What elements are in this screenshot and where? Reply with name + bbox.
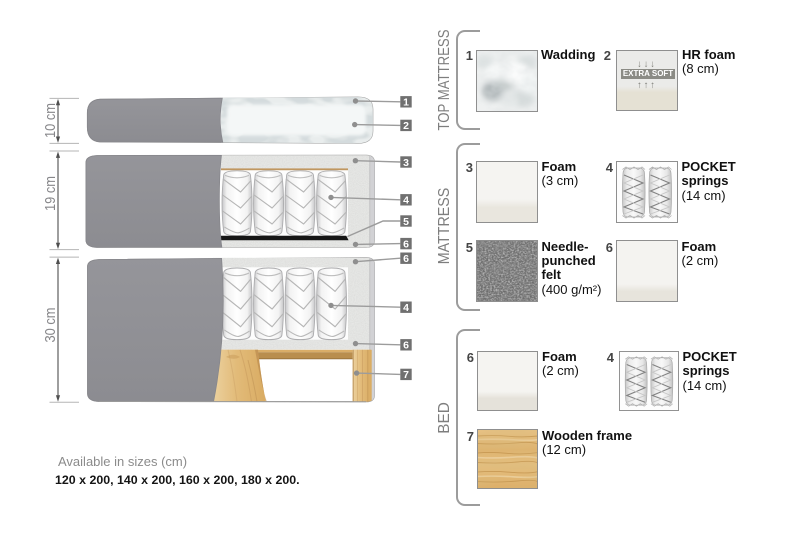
svg-text:2: 2	[403, 120, 409, 132]
svg-text:30 cm: 30 cm	[42, 308, 58, 343]
svg-text:6: 6	[403, 340, 409, 352]
svg-text:7: 7	[403, 369, 409, 381]
svg-text:19 cm: 19 cm	[42, 176, 58, 211]
svg-text:5: 5	[403, 216, 409, 228]
svg-text:1: 1	[403, 97, 409, 109]
svg-text:4: 4	[403, 302, 409, 314]
svg-text:10 cm: 10 cm	[42, 103, 58, 138]
svg-text:4: 4	[403, 195, 409, 207]
svg-text:6: 6	[403, 253, 409, 265]
svg-text:3: 3	[403, 157, 409, 169]
svg-text:6: 6	[403, 238, 409, 250]
